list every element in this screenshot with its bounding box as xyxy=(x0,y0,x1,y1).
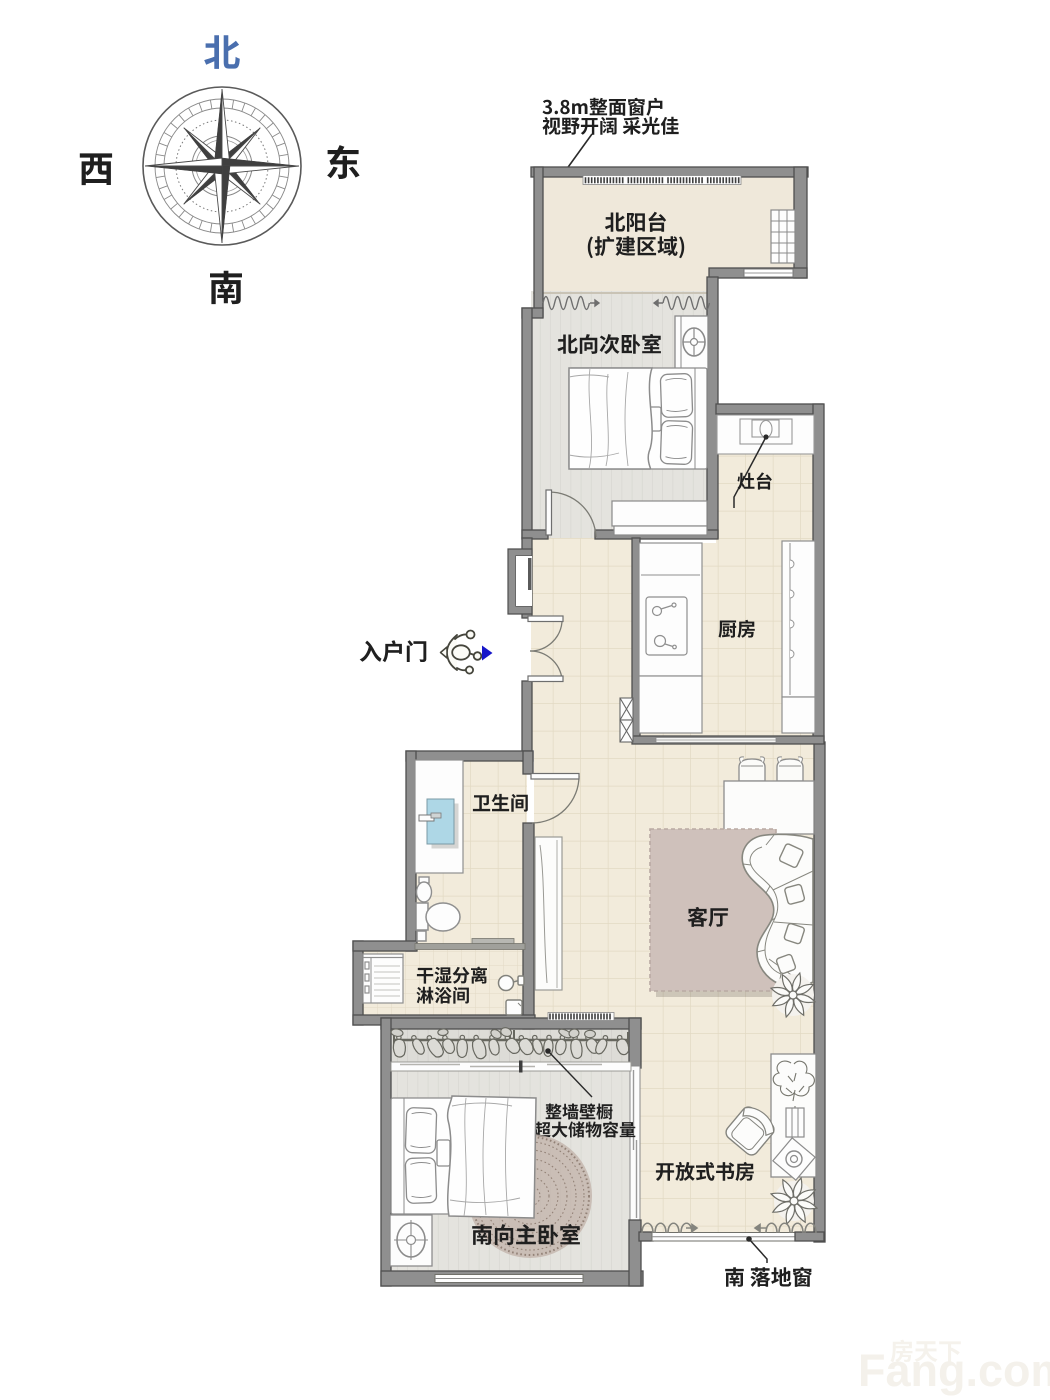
svg-text:Fang.com: Fang.com xyxy=(858,1345,1050,1396)
